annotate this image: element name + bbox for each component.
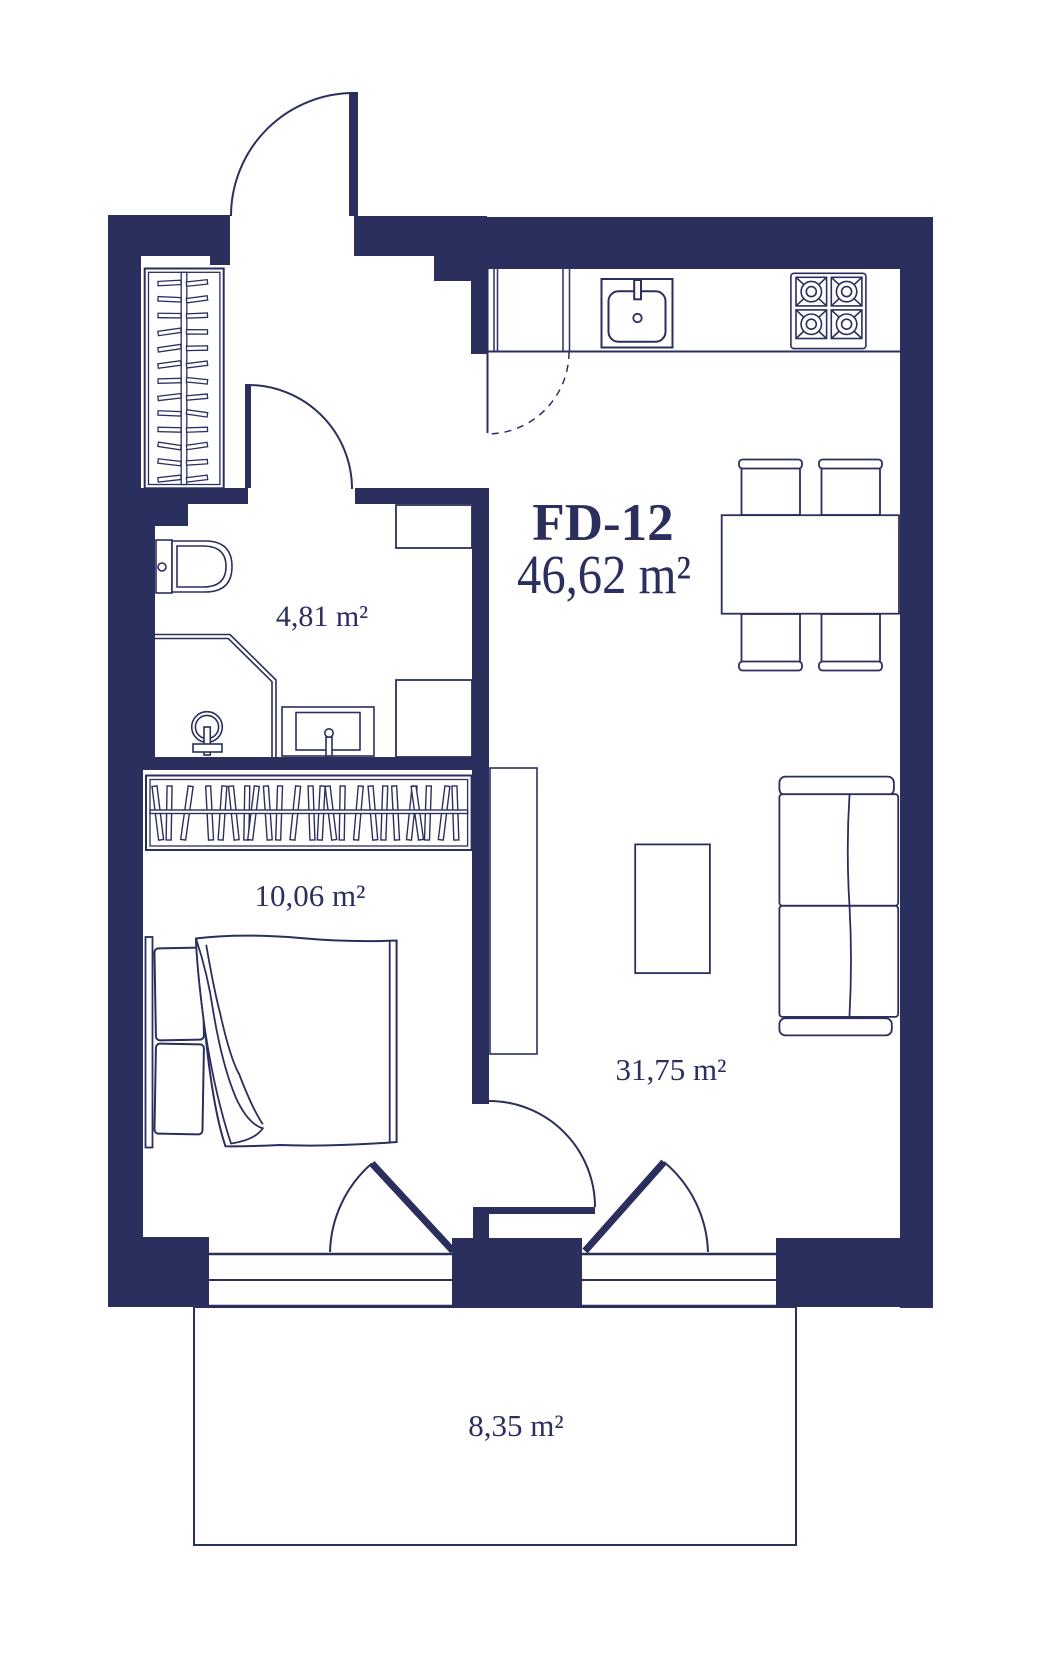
svg-text:10,06 m²: 10,06 m² [255, 878, 366, 913]
svg-text:31,75 m²: 31,75 m² [616, 1052, 727, 1087]
svg-text:46,62 m²: 46,62 m² [517, 544, 691, 605]
svg-text:4,81 m²: 4,81 m² [276, 600, 368, 633]
svg-text:8,35 m²: 8,35 m² [468, 1408, 563, 1443]
